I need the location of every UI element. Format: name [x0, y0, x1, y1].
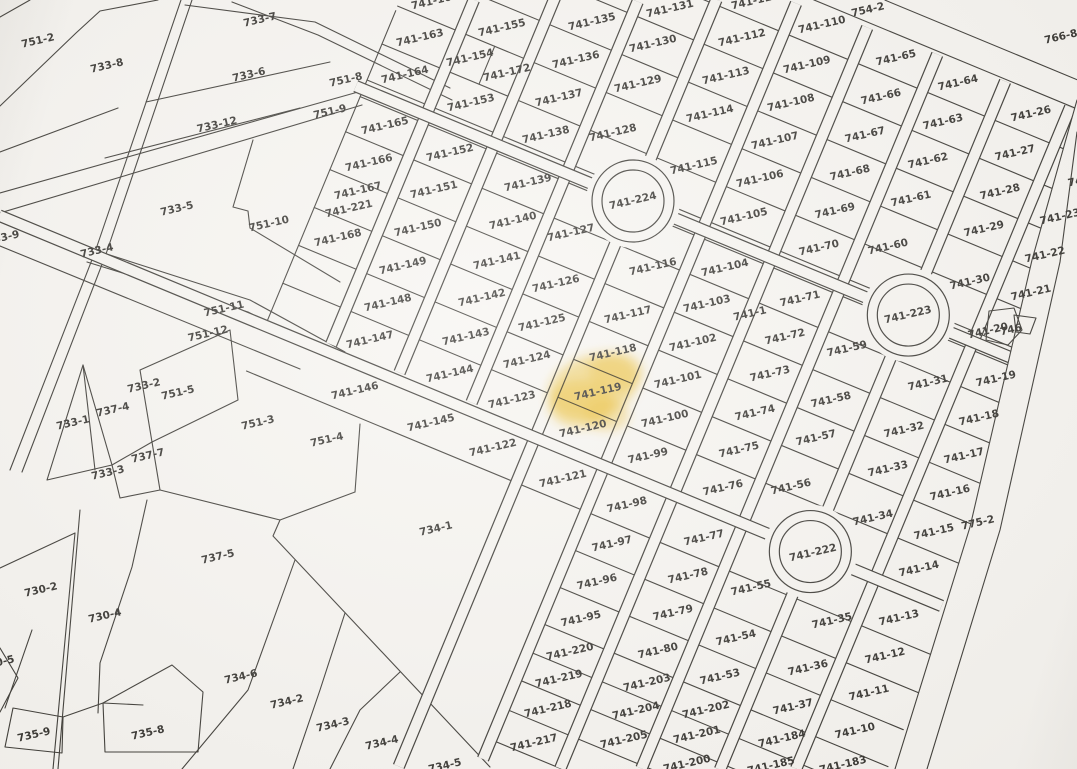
cadastral-map-scan: 751-2733-8733-7733-6751-8733-12751-9733-… — [0, 0, 1077, 769]
plat-map-viewport: 751-2733-8733-7733-6751-8733-12751-9733-… — [0, 0, 1077, 769]
